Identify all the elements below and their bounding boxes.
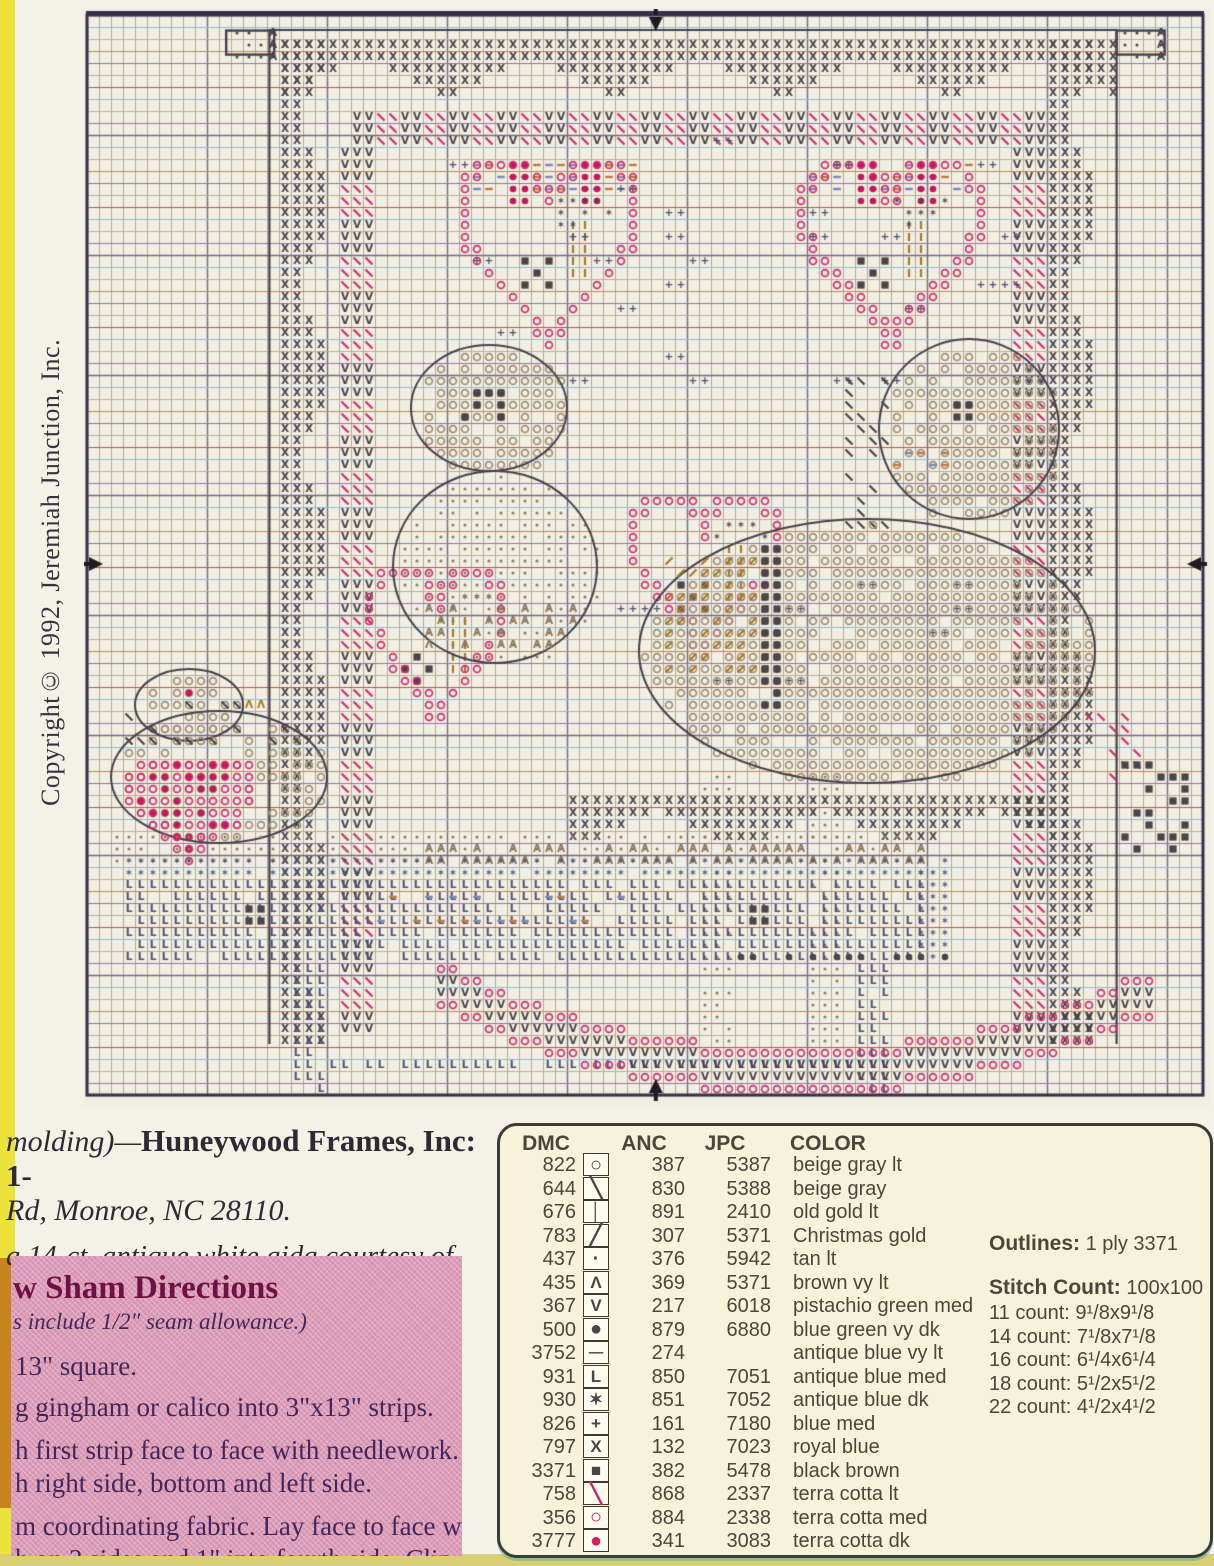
anchor-number: 382 <box>609 1460 685 1483</box>
color-name: antique blue med <box>793 1366 946 1389</box>
legend-row: 500●8796880blue green vy dk <box>516 1319 976 1343</box>
color-name: brown vy lt <box>793 1272 889 1295</box>
directions-line: h first strip face to face with needlewo… <box>15 1435 462 1466</box>
jpc-number: 2410 <box>685 1201 771 1224</box>
legend-row: 3777●3413083terra cotta dk <box>516 1530 976 1554</box>
dmc-number: 3371 <box>516 1460 578 1483</box>
directions-line: h on 3 sides and 1" into fourth side. Cl… <box>15 1544 462 1556</box>
caret-icon: Λ <box>583 1271 609 1294</box>
legend-row: 435Λ3695371brown vy lt <box>516 1272 976 1296</box>
page-edge-orange-stripe <box>0 1258 11 1508</box>
anchor-number: 369 <box>609 1272 685 1295</box>
scanned-pattern-page: { "page_type": "cross-stitch pattern pag… <box>0 0 1214 1566</box>
legend-row: 676│8912410old gold lt <box>516 1201 976 1225</box>
anchor-number: 879 <box>609 1319 685 1342</box>
legend-header-row: DMC ANC JPC COLOR <box>516 1132 936 1156</box>
dmc-number: 826 <box>516 1413 578 1436</box>
count-size-line: 18 count: 5¹/2x5¹/2 <box>989 1373 1204 1397</box>
dmc-number: 3777 <box>516 1530 578 1553</box>
filled-circle-pink-icon: ● <box>583 1529 609 1552</box>
legend-header-anc: ANC <box>606 1132 682 1156</box>
jpc-number: 7052 <box>685 1389 771 1412</box>
jpc-number: 7023 <box>685 1436 771 1459</box>
color-name: terra cotta dk <box>793 1530 910 1553</box>
color-name: royal blue <box>793 1436 880 1459</box>
letter-X-icon: X <box>583 1435 609 1458</box>
directions-subheading: s include 1/2" seam allowance.) <box>13 1309 462 1335</box>
color-name: terra cotta med <box>793 1507 928 1530</box>
legend-row: 822○3875387beige gray lt <box>516 1154 976 1178</box>
count-size-line: 22 count: 4¹/2x4¹/2 <box>989 1396 1204 1420</box>
legend-row: 797X1327023royal blue <box>516 1436 976 1460</box>
dmc-number: 644 <box>516 1178 578 1201</box>
dmc-number: 930 <box>516 1389 578 1412</box>
dmc-number: 3752 <box>516 1342 578 1365</box>
jpc-number: 5387 <box>685 1154 771 1177</box>
dmc-number: 437 <box>516 1248 578 1271</box>
color-name: beige gray <box>793 1178 886 1201</box>
cross-stitch-chart-grid <box>84 9 1210 1107</box>
directions-line: g gingham or calico into 3"x13" strips. <box>15 1392 462 1423</box>
color-name: black brown <box>793 1460 900 1483</box>
dmc-number: 797 <box>516 1436 578 1459</box>
dmc-number: 676 <box>516 1201 578 1224</box>
legend-header-dmc: DMC <box>516 1132 576 1156</box>
legend-row: 758╲8682337terra cotta lt <box>516 1483 976 1507</box>
legend-header-symbol-gap <box>576 1132 606 1156</box>
dmc-number: 783 <box>516 1225 578 1248</box>
backslash-icon: ╲ <box>583 1177 609 1200</box>
dmc-number: 500 <box>516 1319 578 1342</box>
anchor-number: 830 <box>609 1178 685 1201</box>
jpc-number: 6880 <box>685 1319 771 1342</box>
legend-row: 3752─274antique blue vy lt <box>516 1342 976 1366</box>
stitch-count-note: Stitch Count: 100x100 <box>989 1276 1204 1300</box>
legend-header-jpc: JPC <box>682 1132 768 1156</box>
circle-outline-icon: ○ <box>583 1153 609 1176</box>
dmc-number: 367 <box>516 1295 578 1318</box>
anchor-number: 868 <box>609 1483 685 1506</box>
jpc-number: 5371 <box>685 1225 771 1248</box>
jpc-number: 2337 <box>685 1483 771 1506</box>
dmc-number: 758 <box>516 1483 578 1506</box>
dmc-number: 356 <box>516 1507 578 1530</box>
count-size-line: 16 count: 6¹/4x6¹/4 <box>989 1349 1204 1373</box>
anchor-number: 217 <box>609 1295 685 1318</box>
legend-row: 437·3765942tan lt <box>516 1248 976 1272</box>
color-name: blue green vy dk <box>793 1319 940 1342</box>
notes-molding-fragment: molding)— <box>6 1125 141 1158</box>
jpc-number: 5478 <box>685 1460 771 1483</box>
directions-line: m coordinating fabric. Lay face to face … <box>15 1511 462 1542</box>
jpc-number: 5388 <box>685 1178 771 1201</box>
dmc-number: 931 <box>516 1366 578 1389</box>
directions-line: h right side, bottom and left side. <box>15 1468 462 1499</box>
filled-circle-icon: ● <box>583 1318 609 1341</box>
count-size-line: 11 count: 9¹/8x9¹/8 <box>989 1302 1204 1326</box>
anchor-number: 884 <box>609 1507 685 1530</box>
legend-row: 356○8842338terra cotta med <box>516 1507 976 1531</box>
sham-directions-box: w Sham Directions s include 1/2" seam al… <box>11 1256 462 1556</box>
slash-icon: ╱ <box>583 1224 609 1247</box>
anchor-number: 341 <box>609 1530 685 1553</box>
color-name: beige gray lt <box>793 1154 902 1177</box>
anchor-number: 274 <box>609 1342 685 1365</box>
jpc-number: 2338 <box>685 1507 771 1530</box>
circle-outline-pink-icon: ○ <box>583 1506 609 1529</box>
filled-square-icon: ■ <box>583 1459 609 1482</box>
notes-address: Rd, Monroe, NC 28110. <box>6 1194 486 1228</box>
dmc-number: 435 <box>516 1272 578 1295</box>
anchor-number: 132 <box>609 1436 685 1459</box>
color-name: antique blue dk <box>793 1389 929 1412</box>
color-name: tan lt <box>793 1248 836 1271</box>
legend-right-column: Outlines: 1 ply 3371 Stitch Count: 100x1… <box>989 1232 1204 1420</box>
jpc-number: 5942 <box>685 1248 771 1271</box>
legend-row: 783╱3075371Christmas gold <box>516 1225 976 1249</box>
backslash-pink-icon: ╲ <box>583 1482 609 1505</box>
legend-row: 3371■3825478black brown <box>516 1460 976 1484</box>
anchor-number: 161 <box>609 1413 685 1436</box>
anchor-number: 851 <box>609 1389 685 1412</box>
color-name: antique blue vy lt <box>793 1342 943 1365</box>
directions-line: 13" square. <box>15 1351 462 1382</box>
legend-row: 826+1617180blue med <box>516 1413 976 1437</box>
color-name: pistachio green med <box>793 1295 973 1318</box>
anchor-number: 387 <box>609 1154 685 1177</box>
color-name: Christmas gold <box>793 1225 926 1248</box>
anchor-number: 376 <box>609 1248 685 1271</box>
notes-line-frames: molding)—Huneywood Frames, Inc: 1- <box>6 1124 486 1194</box>
legend-header-color: COLOR <box>790 1132 866 1156</box>
jpc-number: 6018 <box>685 1295 771 1318</box>
legend-row: 367V2176018pistachio green med <box>516 1295 976 1319</box>
plus-icon: + <box>583 1412 609 1435</box>
supplier-notes: molding)—Huneywood Frames, Inc: 1- Rd, M… <box>6 1124 486 1273</box>
jpc-number: 5371 <box>685 1272 771 1295</box>
vertical-bar-icon: │ <box>583 1200 609 1223</box>
color-name: old gold lt <box>793 1201 879 1224</box>
color-key-panel: DMC ANC JPC COLOR 822○3875387beige gray … <box>497 1123 1213 1558</box>
count-size-line: 14 count: 7¹/8x7¹/8 <box>989 1326 1204 1350</box>
anchor-number: 850 <box>609 1366 685 1389</box>
anchor-number: 891 <box>609 1201 685 1224</box>
dmc-number: 822 <box>516 1154 578 1177</box>
legend-row: 930✶8517052antique blue dk <box>516 1389 976 1413</box>
jpc-number: 7180 <box>685 1413 771 1436</box>
dash-icon: ─ <box>583 1341 609 1364</box>
jpc-number: 3083 <box>685 1530 771 1553</box>
vee-icon: V <box>583 1294 609 1317</box>
letter-L-icon: L <box>583 1365 609 1388</box>
legend-row: 644╲8305388beige gray <box>516 1178 976 1202</box>
jpc-number: 7051 <box>685 1366 771 1389</box>
legend-rows: 822○3875387beige gray lt644╲8305388beige… <box>516 1154 976 1554</box>
finished-size-list: 11 count: 9¹/8x9¹/814 count: 7¹/8x7¹/816… <box>989 1302 1204 1420</box>
outlines-note: Outlines: 1 ply 3371 <box>989 1232 1204 1256</box>
color-name: blue med <box>793 1413 875 1436</box>
legend-row: 931L8507051antique blue med <box>516 1366 976 1390</box>
directions-heading: w Sham Directions <box>13 1270 462 1307</box>
dot-icon: · <box>583 1247 609 1270</box>
color-name: terra cotta lt <box>793 1483 899 1506</box>
copyright-label: Copyright© 1992, Jeremiah Junction, Inc. <box>36 292 70 852</box>
star-icon: ✶ <box>583 1388 609 1411</box>
anchor-number: 307 <box>609 1225 685 1248</box>
